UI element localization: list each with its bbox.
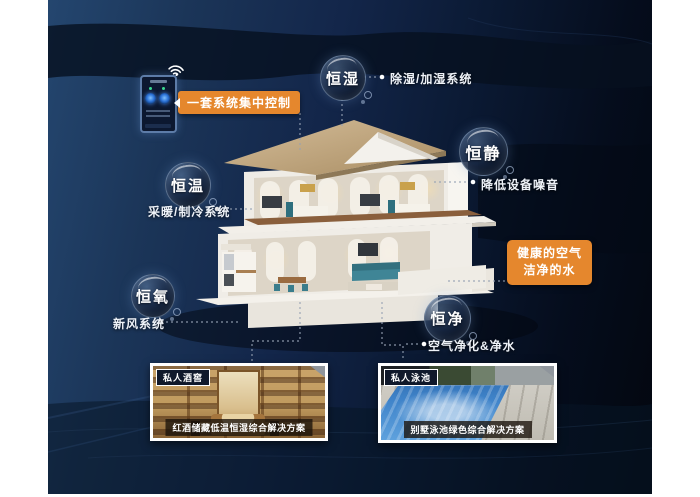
wine-cellar-card: 私人酒窖 红酒储藏低温恒湿综合解决方案 <box>150 363 328 441</box>
phone-indicator-dot <box>149 87 152 90</box>
bubble-constant-oxygen: 恒氧 <box>131 274 175 318</box>
phone-nav-bar <box>145 124 171 128</box>
thermostat-dial-icon <box>145 93 156 104</box>
label-noise-reduction: 降低设备噪音 <box>481 176 559 193</box>
bubble-constant-purity: 恒净 <box>424 295 471 342</box>
wifi-icon <box>167 61 185 76</box>
card-corner-ribbon <box>304 366 325 381</box>
callout-line-2: 洁净的水 <box>517 262 582 279</box>
private-pool-badge: 私人泳池 <box>384 369 438 386</box>
phone-status-bar <box>150 80 167 83</box>
infographic-page: 一套系统集中控制 健康的空气 洁净的水 恒湿 恒静 恒温 恒氧 恒净 除湿/加湿… <box>0 0 700 497</box>
label-heating-cooling-system: 采暖/制冷系统 <box>148 203 230 220</box>
bubble-constant-temperature: 恒温 <box>165 162 211 208</box>
phone-indicator-dot <box>162 87 165 90</box>
pool-card: 私人泳池 别墅泳池绿色综合解决方案 <box>378 363 557 443</box>
bubble-constant-humidity: 恒湿 <box>320 55 366 101</box>
bubble-constant-quiet: 恒静 <box>459 127 508 176</box>
wine-cellar-photo: 私人酒窖 红酒储藏低温恒湿综合解决方案 <box>153 366 325 438</box>
central-control-callout: 一套系统集中控制 <box>178 91 300 114</box>
private-wine-cellar-badge: 私人酒窖 <box>156 369 210 386</box>
pool-photo: 私人泳池 别墅泳池绿色综合解决方案 <box>381 366 554 440</box>
phone-text-row <box>146 115 170 117</box>
wine-cellar-caption: 红酒储藏低温恒湿综合解决方案 <box>165 419 312 436</box>
label-air-water-purification: 空气净化&净水 <box>428 337 516 354</box>
label-fresh-air-system: 新风系统 <box>113 315 165 332</box>
phone-text-row <box>146 110 170 112</box>
dark-canvas: 一套系统集中控制 健康的空气 洁净的水 恒湿 恒静 恒温 恒氧 恒净 除湿/加湿… <box>48 0 652 494</box>
callout-line-1: 健康的空气 <box>517 245 582 262</box>
pool-caption: 别墅泳池绿色综合解决方案 <box>403 421 531 438</box>
healthy-air-water-callout: 健康的空气 洁净的水 <box>507 240 592 285</box>
label-dehumidify-system: 除湿/加湿系统 <box>390 70 472 87</box>
